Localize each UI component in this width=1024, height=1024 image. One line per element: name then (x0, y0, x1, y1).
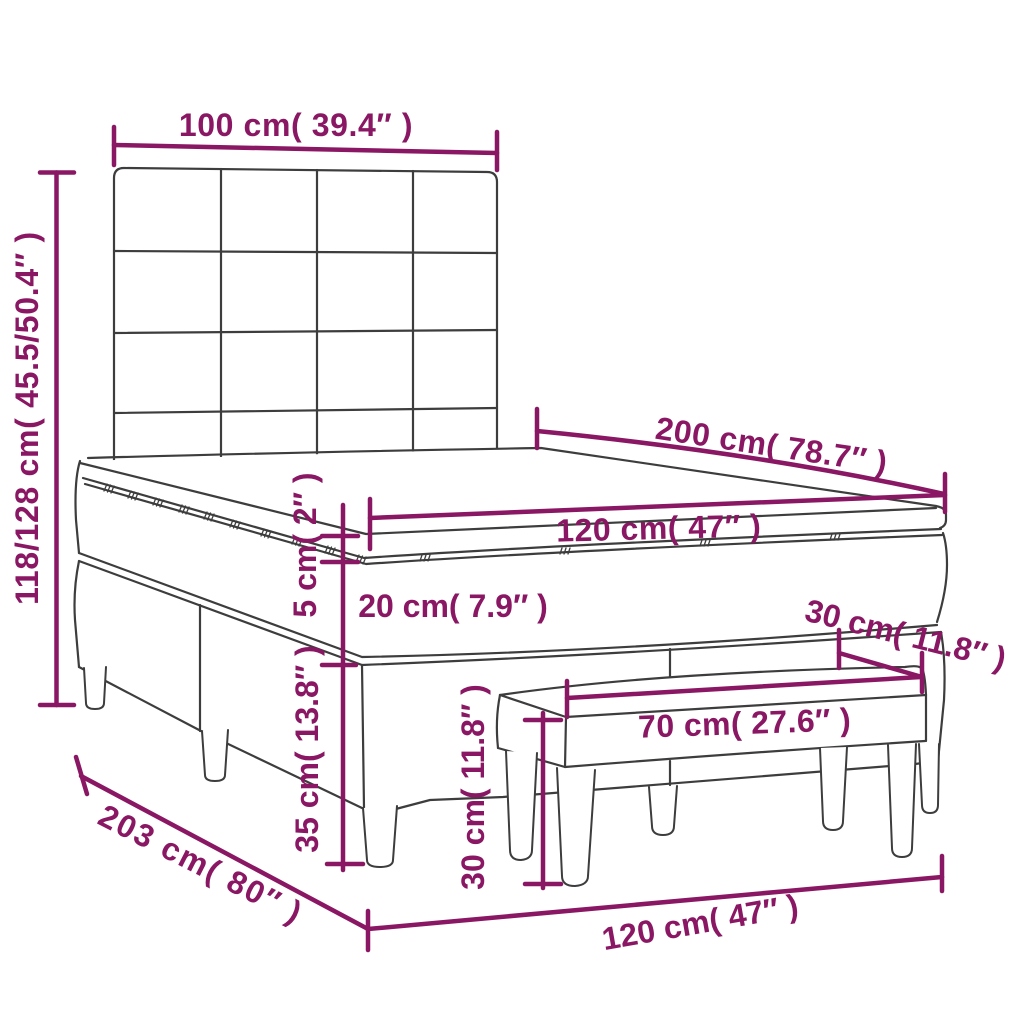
svg-text:100 cm( 39.4″ ): 100 cm( 39.4″ ) (179, 107, 413, 143)
svg-text:20 cm( 7.9″ ): 20 cm( 7.9″ ) (358, 588, 548, 624)
svg-text:70 cm( 27.6″ ): 70 cm( 27.6″ ) (638, 701, 852, 744)
svg-text:35 cm( 13.8″ ): 35 cm( 13.8″ ) (289, 645, 325, 852)
svg-text:5 cm( 2″ ): 5 cm( 2″ ) (287, 472, 323, 617)
svg-text:120 cm( 47″ ): 120 cm( 47″ ) (556, 507, 762, 548)
svg-text:30 cm( 11.8″ ): 30 cm( 11.8″ ) (455, 684, 491, 890)
svg-text:118/128 cm( 45.5/50.4″ ): 118/128 cm( 45.5/50.4″ ) (9, 231, 45, 605)
